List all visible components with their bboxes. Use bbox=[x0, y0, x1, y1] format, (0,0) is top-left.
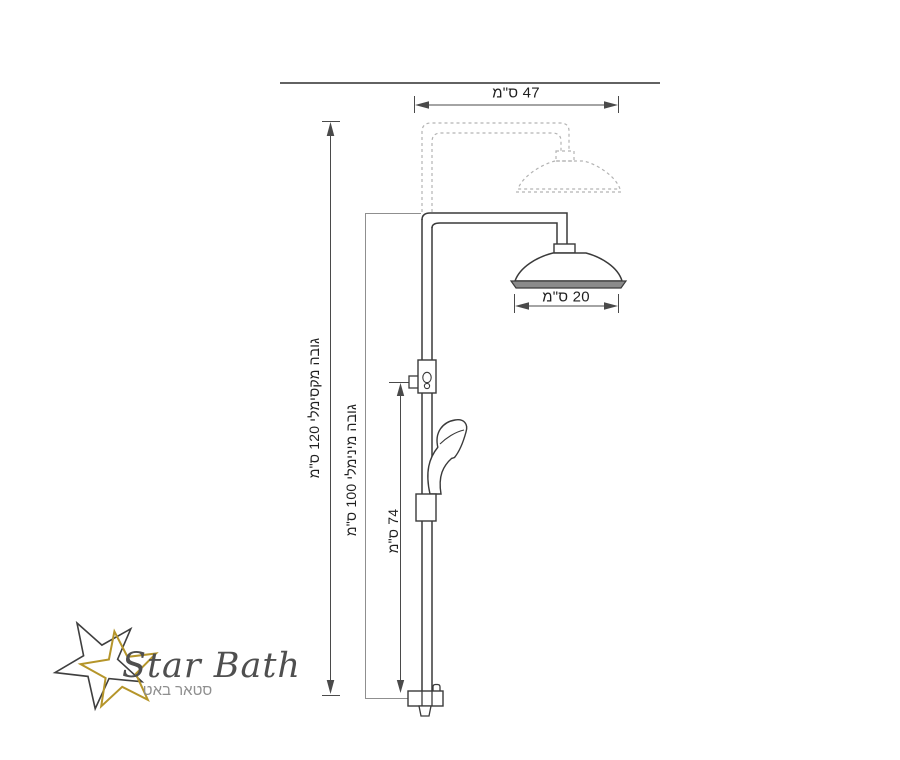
dimension-min-height bbox=[365, 213, 421, 699]
max-height-label: גובה מקסימלי 120 ס"מ bbox=[306, 338, 322, 478]
fixture-outlet bbox=[419, 706, 431, 716]
hand-shower-holder bbox=[416, 494, 436, 521]
phantom-raised-position bbox=[422, 123, 622, 212]
hand-shower bbox=[428, 420, 467, 494]
slider-height-label: 74 ס"מ bbox=[385, 509, 401, 553]
head-diameter-label: 20 ס"מ bbox=[542, 289, 590, 306]
min-height-label: גובה מינימלי 100 ס"מ bbox=[343, 404, 359, 536]
fixture-bracket bbox=[408, 691, 443, 706]
shower-arm-inner bbox=[432, 223, 557, 245]
head-connector bbox=[554, 244, 575, 253]
slider-bracket bbox=[409, 360, 436, 393]
shower-arm-outer bbox=[422, 213, 567, 245]
overhead-shower-dome bbox=[515, 253, 622, 281]
dimension-max-height bbox=[322, 122, 340, 696]
fixture-nub bbox=[433, 685, 440, 692]
bottom-wall-fixture bbox=[408, 685, 443, 717]
overhead-shower-rim bbox=[511, 281, 626, 288]
arm-width-label: 47 ס"מ bbox=[492, 85, 540, 102]
shower-dimension-diagram: 47 ס"מ 20 ס"מ גובה מקסימלי 120 ס"מ גובה … bbox=[0, 0, 900, 760]
logo-brand-name-hebrew: סטאר באט bbox=[130, 682, 225, 699]
logo-brand-name: Star Bath bbox=[122, 646, 301, 686]
